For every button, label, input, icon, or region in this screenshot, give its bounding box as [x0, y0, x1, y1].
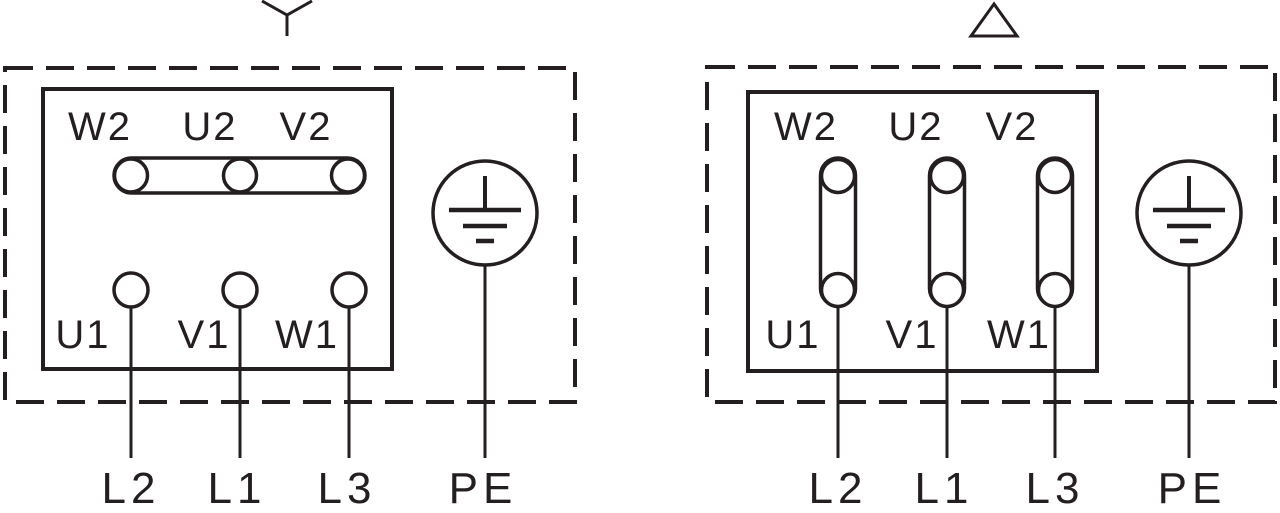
line-label: L2 [102, 464, 161, 513]
wye-symbol-icon [262, 1, 312, 36]
terminal-circle-w2 [822, 160, 855, 193]
terminal-label: U1 [55, 313, 110, 357]
motor-wiring-diagram-figure: W2 U2 V2 U1 V1 W1 L2 L1 L3 PE [0, 0, 1280, 513]
terminal-label: V2 [986, 105, 1039, 149]
terminal-circle-w1 [332, 273, 366, 307]
earth-symbol-icon [1137, 161, 1241, 265]
line-label: L2 [809, 464, 868, 513]
terminal-circle-u1 [822, 274, 855, 307]
terminal-label: V1 [178, 313, 231, 357]
terminal-label: W2 [68, 105, 132, 149]
terminal-circle-w2 [115, 159, 148, 192]
terminal-circle-v2 [332, 159, 365, 192]
line-label: L3 [318, 464, 377, 513]
terminal-circle-u2 [224, 159, 257, 192]
terminal-circle-u2 [931, 160, 964, 193]
terminal-label: U2 [182, 105, 237, 149]
terminal-label: U1 [765, 313, 820, 357]
terminal-label: W2 [774, 105, 838, 149]
terminal-label: V2 [280, 105, 333, 149]
pe-label: PE [449, 464, 518, 513]
line-label: L3 [1026, 464, 1085, 513]
terminal-circle-v2 [1039, 160, 1072, 193]
delta-symbol-icon [971, 4, 1017, 36]
terminal-label: U2 [888, 105, 943, 149]
terminal-label: W1 [275, 313, 339, 357]
diagram-canvas: W2 U2 V2 U1 V1 W1 L2 L1 L3 PE [0, 0, 1280, 513]
terminal-circle-v1 [223, 273, 257, 307]
terminal-label: W1 [987, 313, 1051, 357]
terminal-label: V1 [886, 313, 939, 357]
terminal-circle-v1 [931, 274, 964, 307]
earth-symbol-icon [433, 161, 537, 265]
delta-connection-diagram: W2 U2 V2 U1 V1 W1 L2 L1 L3 PE [707, 4, 1275, 513]
star-connection-diagram: W2 U2 V2 U1 V1 W1 L2 L1 L3 PE [5, 1, 575, 513]
line-label: L1 [915, 464, 974, 513]
pe-label: PE [1158, 464, 1227, 513]
terminal-circle-w1 [1039, 274, 1072, 307]
line-label: L1 [208, 464, 267, 513]
terminal-circle-u1 [114, 273, 148, 307]
